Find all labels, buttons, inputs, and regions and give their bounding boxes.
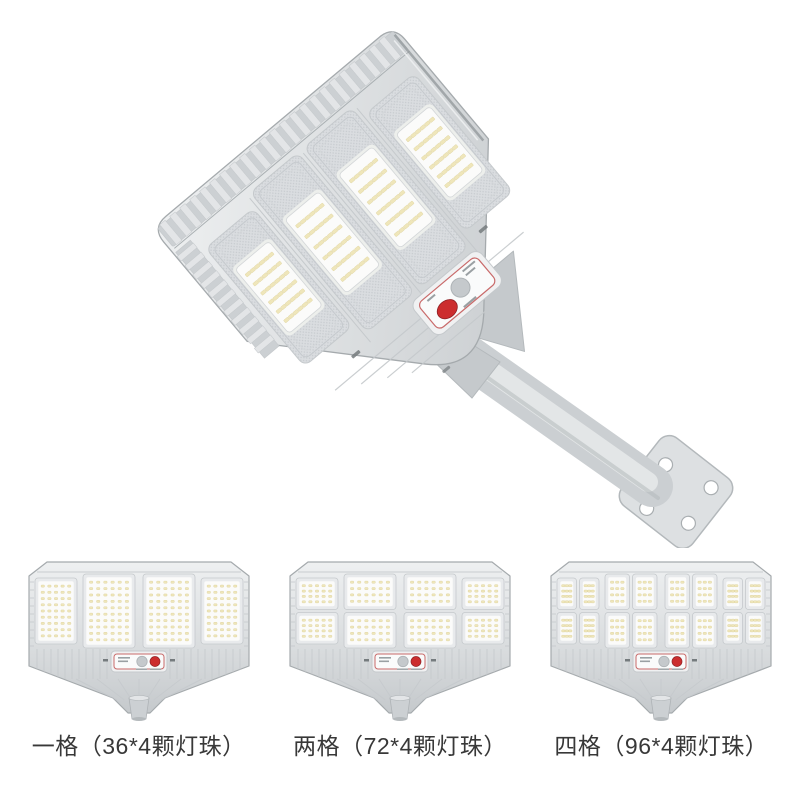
variant-row: 一格（36*4颗灯珠） 两格（72*4颗灯珠）	[0, 548, 800, 762]
variant-one-grid: 一格（36*4颗灯珠）	[8, 548, 269, 762]
main-product-figure	[0, 0, 800, 548]
main-product-image	[0, 0, 800, 548]
variant-four-grid: 四格（96*4颗灯珠）	[531, 548, 792, 762]
variant-four-grid-image	[541, 548, 781, 726]
variant-two-grid-image	[280, 548, 520, 726]
variant-two-grid-label: 两格（72*4颗灯珠）	[293, 732, 507, 762]
product-page: 一格（36*4颗灯珠） 两格（72*4颗灯珠）	[0, 0, 800, 800]
variant-one-grid-label: 一格（36*4颗灯珠）	[32, 732, 246, 762]
variant-four-grid-label: 四格（96*4颗灯珠）	[554, 732, 768, 762]
variant-two-grid: 两格（72*4颗灯珠）	[269, 548, 530, 762]
variant-one-grid-image	[19, 548, 259, 726]
